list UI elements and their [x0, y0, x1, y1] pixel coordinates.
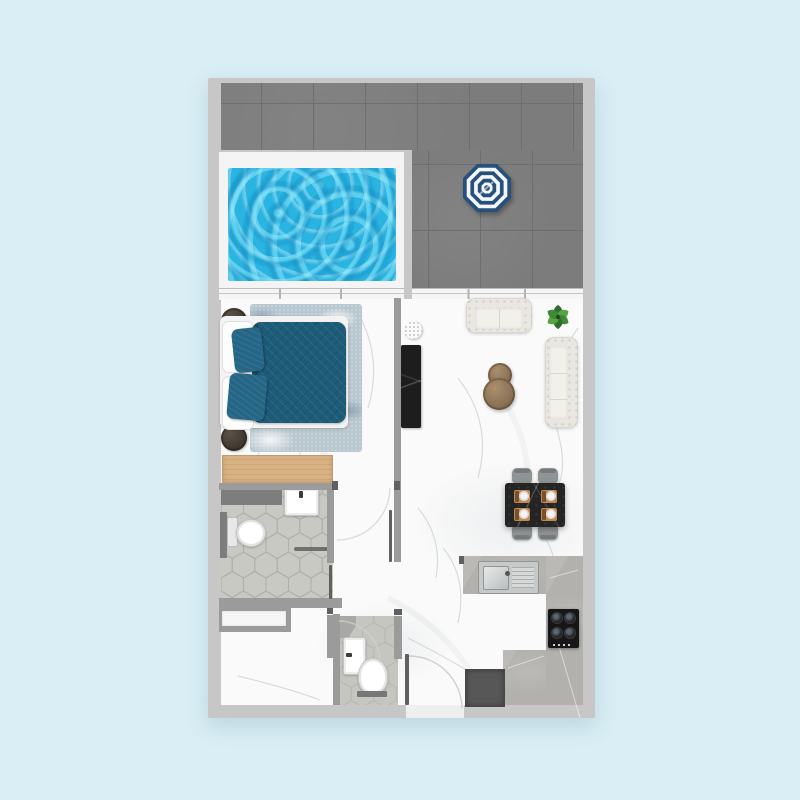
door-leaf-bathroom [329, 565, 332, 599]
monstera-plant-icon [542, 301, 574, 333]
kitchen-counter-bottom [503, 650, 546, 705]
place-setting-2 [541, 490, 557, 503]
place-setting-4 [541, 508, 557, 521]
plate-2 [546, 491, 556, 501]
wall-guest-toilet-east [394, 616, 402, 659]
sofa-cushion-split-1 [550, 373, 567, 374]
kitchen-sink [478, 561, 539, 594]
washbasin-faucet [299, 491, 303, 498]
door-jamb-bedroom [332, 481, 338, 490]
guest-washbasin-faucet [346, 653, 352, 657]
wall-bathroom-south [219, 598, 342, 608]
toilet-bowl [236, 519, 266, 547]
teal-pillow-bottom [226, 372, 268, 421]
dresser [222, 455, 333, 486]
door-leaf-entry [405, 654, 409, 705]
wall-bathroom-east [327, 487, 334, 563]
parasol-icon [460, 161, 514, 215]
door-jamb-guest-toilet [394, 609, 402, 615]
guest-toilet-tank [357, 691, 387, 697]
sofa [545, 337, 578, 428]
door-jamb-kitchen [459, 556, 464, 564]
door-jamb-bedroom-2 [394, 481, 400, 490]
pool [228, 168, 396, 281]
guest-toilet-bowl [358, 658, 388, 694]
plate-3 [519, 509, 529, 519]
door-leaf-living-corridor [389, 510, 392, 562]
dining-table [505, 483, 565, 527]
floor-plan [208, 78, 595, 718]
kitchen-appliance [465, 669, 505, 707]
page-background: { "scene": { "kind": "apartment-floor-pl… [0, 0, 800, 800]
burner-2 [565, 613, 575, 623]
dining-chair-top-left [512, 468, 532, 484]
place-setting-3 [514, 508, 530, 521]
bathroom-left-ledge [220, 512, 227, 558]
plate-4 [546, 509, 556, 519]
tv-console [401, 345, 421, 428]
burner-3 [552, 628, 562, 638]
entry-closet-niche [222, 611, 286, 626]
sink-drainboard [512, 567, 534, 588]
cooktop [548, 609, 579, 648]
dining-chair-top-right [538, 468, 558, 484]
sofa-seat [549, 346, 568, 419]
loveseat-cushion-split [499, 309, 500, 328]
wall-guest-toilet-west [333, 614, 340, 705]
burner-4 [565, 628, 575, 638]
bathroom-washbasin [284, 488, 319, 516]
door-jamb-hall [327, 608, 333, 614]
plate-1 [519, 491, 529, 501]
teal-pillow-top [231, 327, 265, 374]
small-plant [404, 321, 422, 339]
sink-faucet [505, 571, 510, 576]
coffee-table-large [483, 378, 515, 410]
sink-basin [483, 566, 509, 590]
terrace-tiles-top-band [221, 83, 583, 150]
wall-bedroom-living-divider [394, 298, 401, 562]
sofa-cushion-split-2 [550, 399, 567, 400]
bed-duvet [252, 322, 346, 423]
wall-bedroom-south [219, 483, 336, 490]
place-setting-1 [514, 490, 530, 503]
entry-door-opening [406, 705, 464, 718]
burner-1 [552, 613, 562, 623]
loveseat [466, 298, 532, 333]
pool-deck-wall [404, 150, 412, 290]
